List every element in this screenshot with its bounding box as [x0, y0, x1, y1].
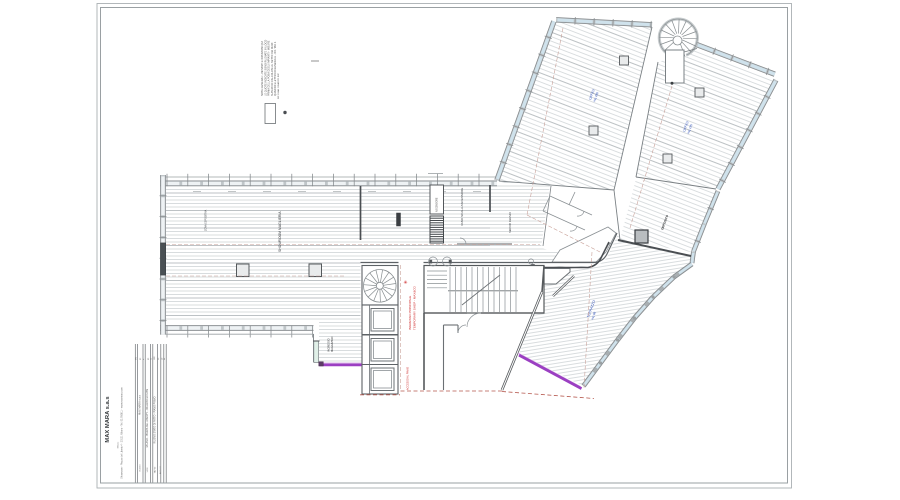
svg-text:05.2016: 05.2016 — [139, 464, 141, 472]
svg-text:Showroom - Piazza del Liberty: Showroom - Piazza del Liberty 4 - 20121 … — [121, 387, 124, 478]
svg-text:MAX MARA s.a.s: MAX MARA s.a.s — [137, 394, 141, 415]
svg-text:TEMPORARY SHOP - MAX&CO: TEMPORARY SHOP - MAX&CO — [413, 285, 417, 330]
svg-text:MILANO - PIAZZA DEL LIBERTY -: MILANO - PIAZZA DEL LIBERTY - PALAZZO EX… — [146, 389, 149, 448]
svg-text:ACCESSO AL PIANO: ACCESSO AL PIANO — [407, 367, 410, 390]
svg-text:AGG. 01: AGG. 01 — [159, 465, 162, 474]
svg-text:✳: ✳ — [403, 280, 407, 286]
svg-text:VANO SCALA ASCENSORE: VANO SCALA ASCENSORE — [460, 188, 464, 226]
svg-text:RIF. ELAB. GRAFICO IMP.: RIF. ELAB. GRAFICO IMP. — [277, 73, 280, 99]
svg-text:Milano: Milano — [118, 441, 120, 448]
svg-text:INGRESSO: INGRESSO — [327, 338, 331, 352]
svg-text:ZONA ESPOSITIVA: ZONA ESPOSITIVA — [205, 209, 208, 231]
svg-text:MAX MARA s.a.s: MAX MARA s.a.s — [105, 396, 111, 442]
svg-text:ASCENSORE: ASCENSORE — [436, 197, 439, 212]
svg-text:sc: sc — [151, 358, 153, 360]
svg-text:INGRESSO PRINCIPALE: INGRESSO PRINCIPALE — [408, 296, 412, 330]
svg-text:RILIEVO STATO DI FATTO - PIANO: RILIEVO STATO DI FATTO - PIANO PRIMO — [154, 396, 157, 443]
svg-text:1:200: 1:200 — [147, 467, 149, 473]
svg-text:MAGAZZINO: MAGAZZINO — [330, 337, 334, 352]
svg-text:rev: rev — [135, 357, 137, 360]
svg-text:TAV 02: TAV 02 — [154, 466, 157, 473]
svg-text:SHOWROOM MAGLIERIA: SHOWROOM MAGLIERIA — [278, 211, 282, 252]
svg-text:SERVIZI IGIENICI: SERVIZI IGIENICI — [508, 212, 512, 233]
svg-text:QUADRO ELETTRICO GENERALE - RI: QUADRO ELETTRICO GENERALE - RIF. TAV. 1 — [274, 41, 277, 96]
